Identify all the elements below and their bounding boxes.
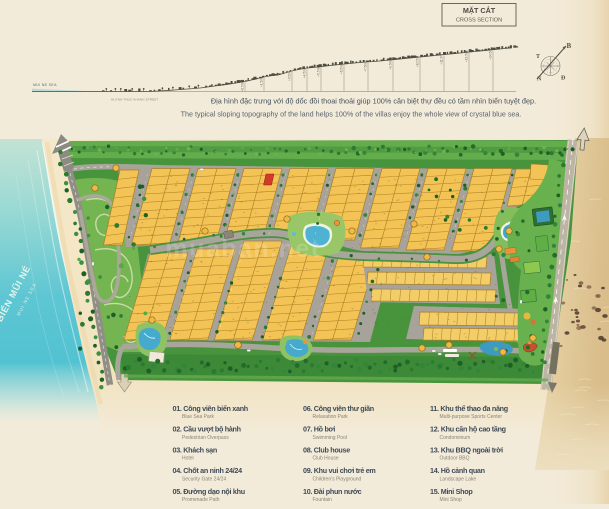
svg-text:N: N: [537, 77, 542, 83]
svg-text:04. Chốt an ninh 24/24: 04. Chốt an ninh 24/24: [173, 466, 243, 475]
svg-text:Địa hình đặc trưng với độ dốc: Địa hình đặc trưng với độ dốc đồi thoai …: [211, 97, 536, 106]
svg-text:muaban.net: muaban.net: [165, 235, 320, 263]
svg-text:12. Khu căn hộ cao tầng: 12. Khu căn hộ cao tầng: [430, 425, 506, 434]
svg-text:15. Mini Shop: 15. Mini Shop: [430, 487, 473, 496]
svg-text:+3.5m: +3.5m: [288, 72, 292, 81]
svg-text:+5.5m: +5.5m: [317, 67, 321, 76]
svg-text:Pedestrian Overpass: Pedestrian Overpass: [182, 435, 229, 441]
svg-text:14. Hồ cảnh quan: 14. Hồ cảnh quan: [430, 466, 485, 475]
svg-text:HUYNH THUC KHANG STREET: HUYNH THUC KHANG STREET: [111, 98, 158, 102]
svg-text:Club House: Club House: [313, 456, 339, 462]
svg-text:Blue Sea Park: Blue Sea Park: [182, 414, 214, 420]
svg-text:Landscape Lake: Landscape Lake: [440, 476, 477, 482]
svg-text:+6.5m: +6.5m: [340, 65, 344, 74]
svg-text:01. Công viên biển xanh: 01. Công viên biển xanh: [173, 404, 248, 413]
svg-text:Multi-purpose Sports Center: Multi-purpose Sports Center: [440, 414, 503, 420]
svg-text:05. Đường dạo nội khu: 05. Đường dạo nội khu: [173, 487, 245, 496]
svg-text:+9.5m: +9.5m: [389, 60, 393, 69]
svg-text:Relaxation Park: Relaxation Park: [313, 414, 349, 420]
svg-text:11. Khu thể thao đa năng: 11. Khu thể thao đa năng: [430, 404, 508, 413]
svg-text:Outdoor BBQ: Outdoor BBQ: [440, 456, 470, 462]
svg-text:+11.5m: +11.5m: [440, 54, 444, 65]
svg-text:06. Công viên thư giãn: 06. Công viên thư giãn: [303, 404, 374, 413]
svg-text:+0.5m: +0.5m: [241, 82, 245, 91]
svg-text:09. Khu vui chơi trẻ em: 09. Khu vui chơi trẻ em: [303, 466, 376, 475]
svg-text:+14.5m: +14.5m: [489, 49, 493, 60]
svg-text:+1.5m: +1.5m: [260, 78, 264, 87]
svg-text:+13.5m: +13.5m: [465, 51, 469, 62]
svg-text:07. Hồ bơi: 07. Hồ bơi: [303, 425, 335, 434]
svg-text:Hotel: Hotel: [182, 456, 194, 462]
svg-text:CROSS SECTION: CROSS SECTION: [456, 18, 502, 24]
svg-text:03. Khách sạn: 03. Khách sạn: [173, 445, 217, 454]
svg-text:13. Khu BBQ ngoài trời: 13. Khu BBQ ngoài trời: [430, 445, 503, 454]
svg-text:+4.5m: +4.5m: [303, 69, 307, 78]
svg-text:10. Đài phun nước: 10. Đài phun nước: [303, 487, 362, 496]
svg-text:MUI NE SEA: MUI NE SEA: [33, 83, 57, 87]
svg-text:The typical sloping topography: The typical sloping topography of the la…: [181, 110, 522, 119]
svg-text:MẶT CẮT: MẶT CẮT: [463, 6, 496, 15]
svg-text:Promenade Path: Promenade Path: [182, 497, 220, 503]
svg-text:Security Gate 24/24: Security Gate 24/24: [182, 476, 226, 482]
svg-text:Swimming Pool: Swimming Pool: [313, 435, 347, 441]
svg-text:B: B: [567, 42, 572, 50]
svg-text:Đ: Đ: [561, 76, 566, 82]
svg-text:Fountain: Fountain: [313, 497, 333, 503]
svg-text:T: T: [536, 54, 540, 60]
svg-text:Children's Playground: Children's Playground: [313, 476, 362, 482]
svg-text:Condominium: Condominium: [440, 435, 471, 441]
svg-text:Mini Shop: Mini Shop: [440, 497, 462, 503]
svg-text:08. Club house: 08. Club house: [303, 445, 350, 454]
svg-text:02. Cầu vượt bộ hành: 02. Cầu vượt bộ hành: [173, 425, 241, 434]
svg-text:+7.5m: +7.5m: [364, 63, 368, 72]
